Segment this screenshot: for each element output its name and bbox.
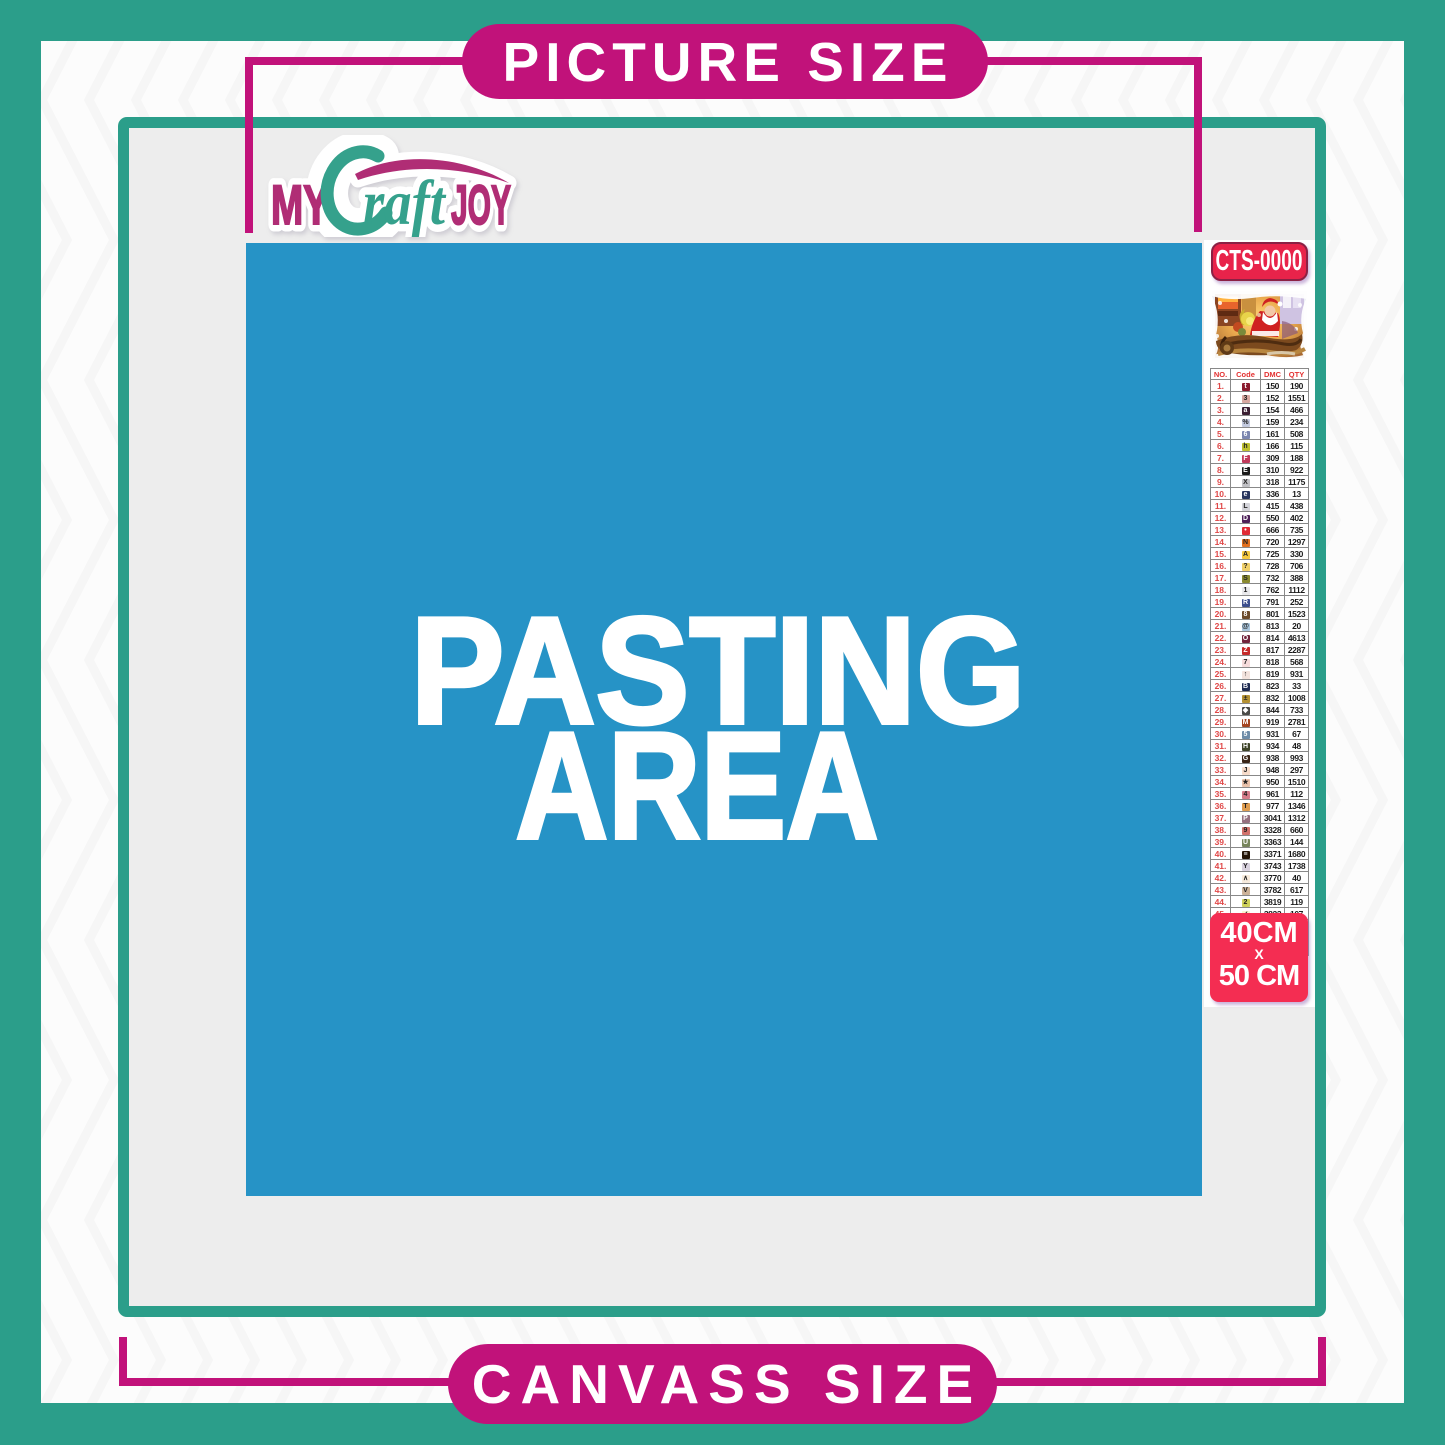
svg-text:JOY: JOY [451,173,511,236]
svg-text:MY: MY [271,173,329,236]
svg-text:raft: raft [363,167,447,237]
svg-text:CTS-0000: CTS-0000 [1216,245,1303,277]
svg-text:AREA: AREA [516,701,879,871]
